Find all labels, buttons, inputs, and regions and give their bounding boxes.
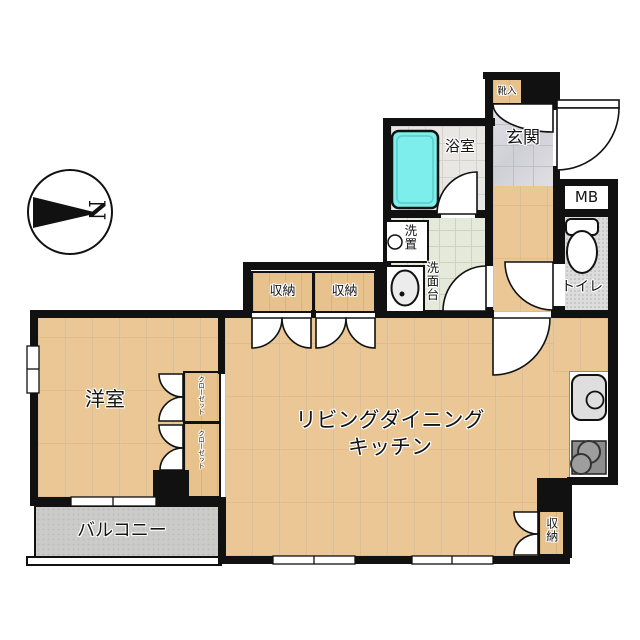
wall-block-western-room xyxy=(153,470,189,505)
bathroom-door-arc xyxy=(437,172,477,214)
ldk-label-line1: リビングダイニング xyxy=(245,408,535,432)
hall-ldk-door-arc xyxy=(493,318,550,375)
closet-upper-label: クローゼット xyxy=(196,376,203,420)
bathroom-label: 浴室 xyxy=(435,136,485,158)
ldk-storage-bifold-door xyxy=(514,512,538,534)
meter-box-label: MB xyxy=(565,187,608,208)
closet-lower-label: クローゼット xyxy=(196,430,203,492)
toilet-icon xyxy=(566,219,598,273)
ldk-label: リビングダイニング キッチン xyxy=(245,408,535,459)
laundry-space-label: 洗置 xyxy=(402,224,416,262)
balcony-label: バルコニー xyxy=(47,518,197,544)
hall-storage-right-door-arc xyxy=(316,318,346,348)
closet-upper-door-arc xyxy=(159,374,183,397)
closet-lower-door-arc xyxy=(160,448,183,470)
washbasin-icon xyxy=(386,266,424,312)
closet-upper-door-arc xyxy=(159,397,183,421)
toilet-label: トイレ xyxy=(556,277,608,297)
hall-storage-left-door-arc xyxy=(252,318,282,348)
kitchen-sink-icon xyxy=(572,375,606,420)
shoe-cabinet-label: 靴入 xyxy=(491,82,523,102)
ldk-storage-bifold-door xyxy=(514,534,538,555)
wall-block-kitchen-corner xyxy=(537,478,572,512)
closet-lower-door-arc xyxy=(159,425,183,448)
washing-machine-circle-icon xyxy=(388,235,402,249)
front-door-arc xyxy=(557,108,619,170)
washroom-door-arc xyxy=(443,266,486,311)
hall-storage-left-label: 収納 xyxy=(252,283,313,301)
hall-storage-left-door-arc xyxy=(282,318,311,348)
toilet-door-arc xyxy=(505,262,553,310)
washstand-label: 洗面台 xyxy=(424,261,438,319)
ldk-storage-label: 収納 xyxy=(544,517,558,553)
western-room-label: 洋室 xyxy=(60,385,150,413)
front-door-leaf xyxy=(557,100,619,108)
hall-storage-right-label: 収納 xyxy=(314,283,375,301)
entrance-label: 玄関 xyxy=(495,127,551,151)
hall-storage-right-door-arc xyxy=(346,318,375,348)
stove-icon xyxy=(571,441,606,474)
floor-plan: 靴入 玄関 浴室 MB トイレ 洗置 洗面台 収納 収納 洋室 クローゼット ク… xyxy=(0,0,640,640)
bathtub-icon xyxy=(392,131,438,208)
compass-north-label: N xyxy=(83,200,109,224)
ldk-label-line2: キッチン xyxy=(245,435,535,459)
